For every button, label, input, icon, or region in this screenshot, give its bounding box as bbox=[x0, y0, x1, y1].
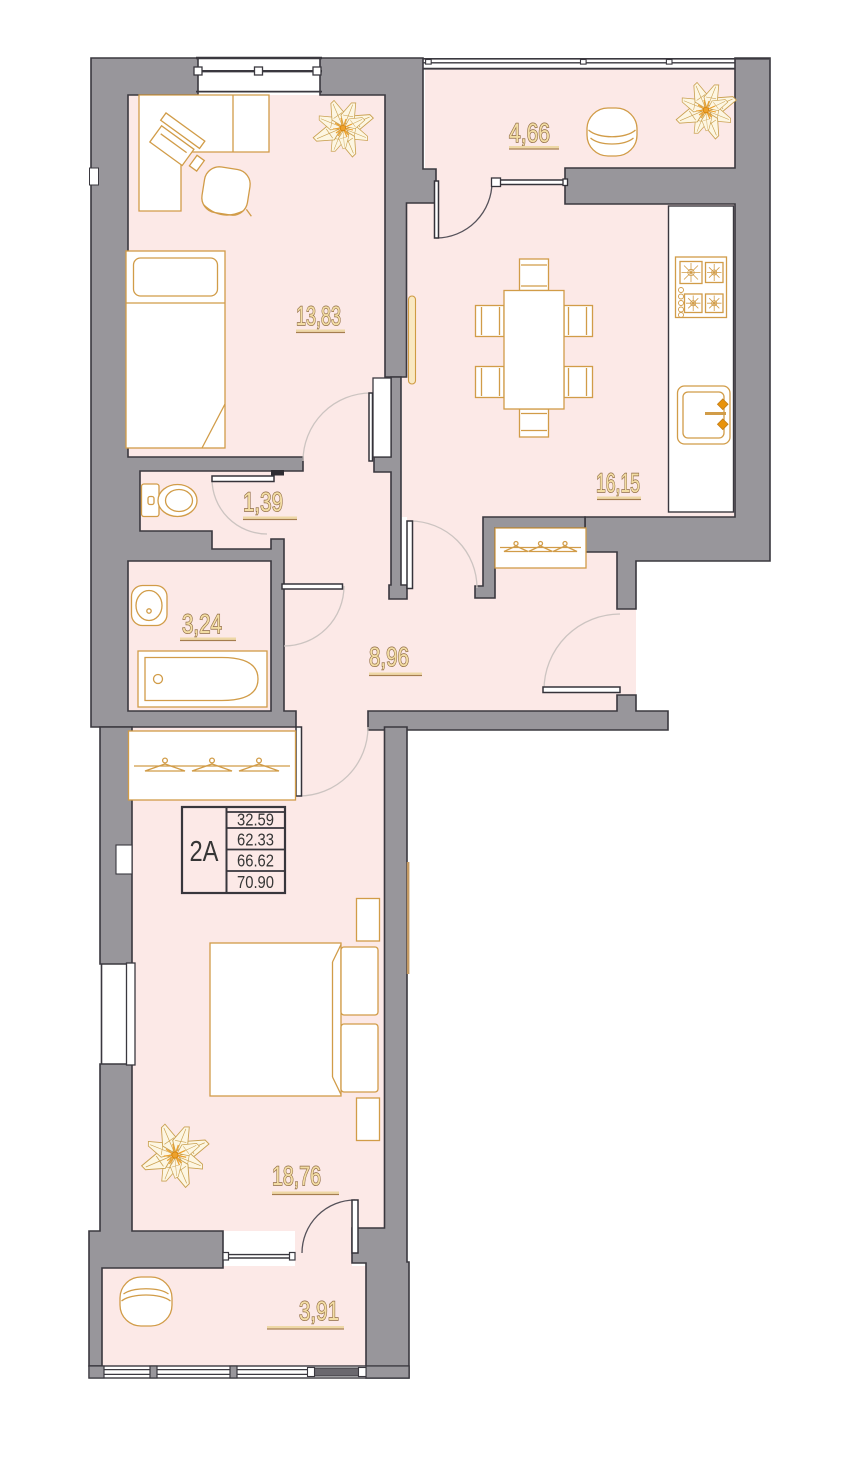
svg-text:62.33: 62.33 bbox=[237, 830, 274, 850]
svg-text:4,66: 4,66 bbox=[509, 118, 550, 148]
svg-text:70.90: 70.90 bbox=[237, 872, 274, 892]
svg-text:8,96: 8,96 bbox=[369, 642, 409, 672]
svg-text:16,15: 16,15 bbox=[596, 468, 640, 498]
svg-text:1,39: 1,39 bbox=[243, 487, 283, 517]
svg-text:66.62: 66.62 bbox=[237, 851, 274, 871]
svg-text:13,83: 13,83 bbox=[296, 301, 341, 331]
svg-text:3,24: 3,24 bbox=[182, 609, 222, 639]
svg-text:32.59: 32.59 bbox=[237, 810, 274, 830]
svg-text:2A: 2A bbox=[190, 836, 220, 868]
svg-text:18,76: 18,76 bbox=[272, 1161, 321, 1191]
svg-text:3,91: 3,91 bbox=[299, 1296, 339, 1326]
